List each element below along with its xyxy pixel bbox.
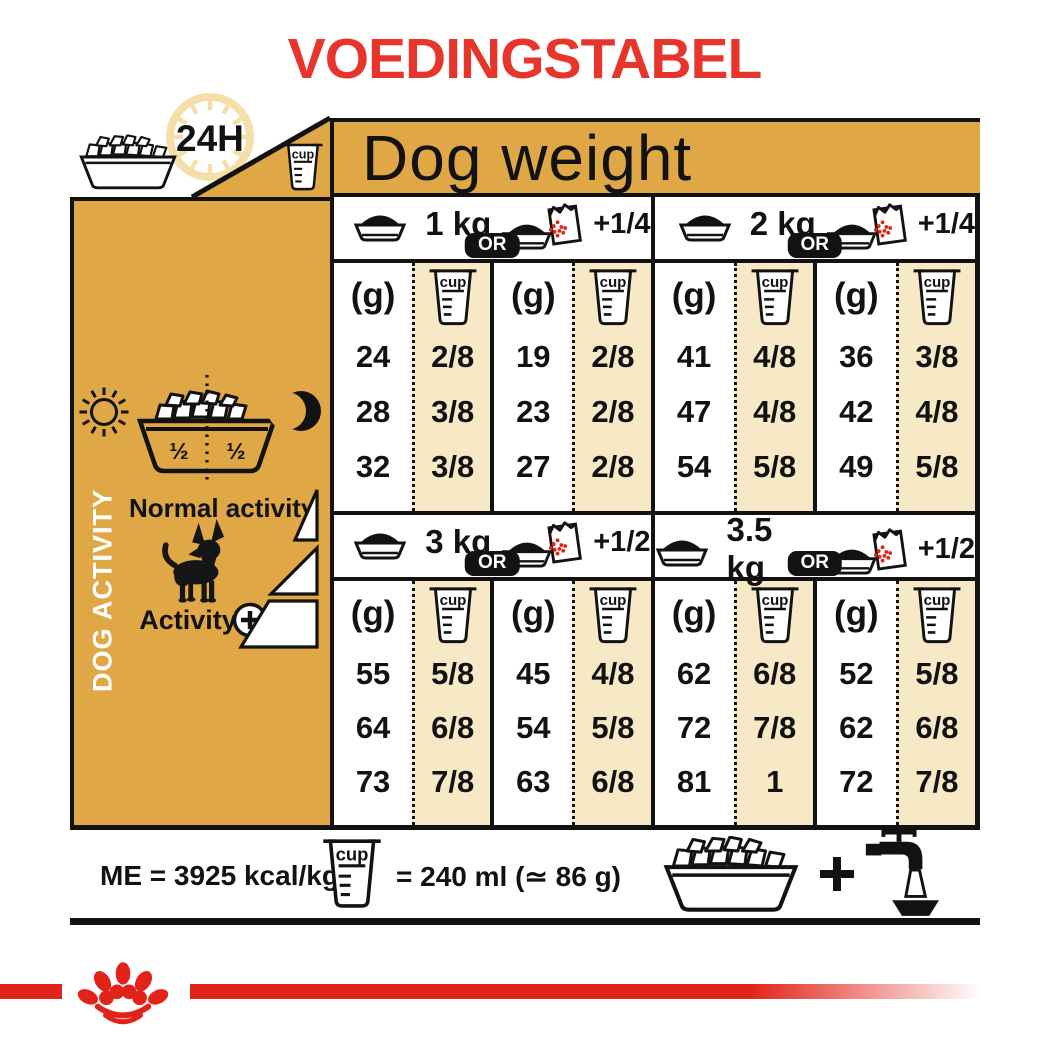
grams-value: 54: [494, 701, 572, 755]
half-left-label: ½: [169, 438, 188, 464]
feeding-table-page: cup: [0, 0, 1049, 1049]
dry-only-subcolumn: (g) 55 64 73 5/8 6/8 7/8: [334, 581, 494, 825]
mixed-feeding-subcolumn: (g) 19 23 27 2/8 2/8 2/8: [494, 263, 650, 511]
kibble-bowl-icon: [655, 836, 807, 912]
cup-value: 6/8: [415, 701, 490, 755]
grams-value: 62: [655, 647, 734, 701]
cup-value: 5/8: [415, 647, 490, 701]
weight-section-2kg: 2 kg +1/4 OR (g) 41 47 54: [655, 197, 976, 515]
brand-band-right: [190, 984, 990, 999]
dry-bowl-icon: [655, 538, 709, 568]
wet-extra-label: +1/4: [918, 210, 975, 239]
kibble-bowl-icon: [78, 134, 178, 190]
grams-value: 41: [655, 329, 734, 384]
activity-level-triangles: [239, 488, 319, 650]
grams-value: 36: [817, 329, 896, 384]
half-half-bowl-icon: ½ ½: [132, 373, 282, 485]
weight-section-3-5kg: 3.5 kg +1/2 OR (g) 62 72 81: [655, 515, 976, 825]
grams-value: 72: [817, 755, 896, 809]
grams-header: (g): [334, 263, 412, 329]
sun-icon: [76, 384, 132, 440]
mixed-feeding-subcolumn: (g) 36 42 49 3/8 4/8 5/8: [817, 263, 975, 511]
dog-weight-label: Dog weight: [362, 121, 692, 195]
dry-bowl-icon: [678, 213, 732, 243]
grams-value: 24: [334, 329, 412, 384]
grams-value: 55: [334, 647, 412, 701]
grams-value: 54: [655, 440, 734, 495]
grams-value: 63: [494, 755, 572, 809]
or-badge: OR: [465, 233, 520, 258]
grams-value: 52: [817, 647, 896, 701]
grams-value: 32: [334, 440, 412, 495]
dry-bowl-icon: [353, 531, 407, 561]
weight-section-3kg: 3 kg +1/2 OR (g) 55 64 73: [334, 515, 655, 825]
grams-value: 62: [817, 701, 896, 755]
dry-bowl-icon: [353, 213, 407, 243]
cup-icon: [587, 265, 639, 327]
grams-value: 73: [334, 755, 412, 809]
activity-triangle-large: [241, 601, 317, 647]
hours-24h-label: 24H: [176, 118, 244, 160]
cup-value: 5/8: [899, 647, 975, 701]
cup-value: 5/8: [899, 440, 975, 495]
section-header: 3 kg +1/2 OR: [334, 515, 651, 581]
grams-value: 81: [655, 755, 734, 809]
cup-value: 7/8: [899, 755, 975, 809]
cup-icon: [427, 583, 479, 645]
metabolizable-energy-label: ME = 3925 kcal/kg: [100, 860, 339, 892]
or-badge: OR: [465, 551, 520, 576]
dry-only-subcolumn: (g) 62 72 81 6/8 7/8 1: [655, 581, 817, 825]
cup-icon: [320, 834, 384, 910]
or-badge: OR: [788, 233, 843, 258]
dog-silhouette-icon: [147, 519, 241, 605]
royal-canin-crown-logo: [64, 952, 182, 1030]
grams-value: 64: [334, 701, 412, 755]
cup-value: 6/8: [575, 755, 650, 809]
cup-icon: [749, 583, 801, 645]
cup-value: 5/8: [575, 701, 650, 755]
cup-value: 2/8: [575, 384, 650, 439]
cup-value: 2/8: [575, 440, 650, 495]
grams-value: 23: [494, 384, 572, 439]
dog-activity-vertical-label: DOG ACTIVITY: [86, 481, 120, 699]
weight-sections-grid: 1 kg +1/4 OR (g) 24 28 32: [330, 197, 980, 830]
grams-header: (g): [817, 581, 896, 647]
dog-activity-sidebar: ½ ½ DOG ACTIVITY Normal activity: [70, 197, 330, 830]
grams-value: 45: [494, 647, 572, 701]
dry-only-subcolumn: (g) 24 28 32 2/8 3/8 3/8: [334, 263, 494, 511]
cup-value: 3/8: [415, 440, 490, 495]
mixed-feeding-subcolumn: (g) 45 54 63 4/8 5/8 6/8: [494, 581, 650, 825]
grams-value: 47: [655, 384, 734, 439]
cup-icon: [427, 265, 479, 327]
cup-value: 4/8: [737, 384, 813, 439]
half-right-label: ½: [226, 438, 245, 464]
section-header: 1 kg +1/4 OR: [334, 197, 651, 263]
grams-header: (g): [494, 581, 572, 647]
grams-header: (g): [655, 263, 734, 329]
grams-value: 72: [655, 701, 734, 755]
moon-icon: [280, 389, 322, 433]
cup-value: 4/8: [737, 329, 813, 384]
water-tap-icon: [860, 824, 938, 922]
grams-header: (g): [655, 581, 734, 647]
wet-extra-label: +1/2: [593, 528, 650, 557]
cup-icon: [911, 583, 963, 645]
section-header: 3.5 kg +1/2 OR: [655, 515, 976, 581]
cup-value: 3/8: [899, 329, 975, 384]
weight-section-1kg: 1 kg +1/4 OR (g) 24 28 32: [334, 197, 655, 515]
section-header: 2 kg +1/4 OR: [655, 197, 976, 263]
cup-value: 4/8: [899, 384, 975, 439]
plus-icon: [820, 857, 854, 891]
or-badge: OR: [788, 551, 843, 576]
cup-value: 2/8: [415, 329, 490, 384]
grams-value: 42: [817, 384, 896, 439]
cup-value: 3/8: [415, 384, 490, 439]
cup-value: 5/8: [737, 440, 813, 495]
cup-value: 1: [737, 755, 813, 809]
dog-weight-header: Dog weight: [330, 118, 980, 197]
grams-header: (g): [334, 581, 412, 647]
page-title: VOEDINGSTABEL: [0, 26, 1049, 92]
cup-icon: [911, 265, 963, 327]
brand-band-left: [0, 984, 62, 999]
grams-value: 27: [494, 440, 572, 495]
cup-value: 4/8: [575, 647, 650, 701]
footer-info-bar: ME = 3925 kcal/kg = 240 ml (≃ 86 g): [70, 830, 980, 925]
activity-triangle-small: [295, 490, 317, 540]
cup-value: 7/8: [737, 701, 813, 755]
cup-value: 7/8: [415, 755, 490, 809]
activity-triangle-medium: [271, 548, 317, 594]
wet-extra-label: +1/4: [593, 210, 650, 239]
cup-value: 6/8: [737, 647, 813, 701]
mixed-feeding-subcolumn: (g) 52 62 72 5/8 6/8 7/8: [817, 581, 975, 825]
cup-icon: [587, 583, 639, 645]
cup-equivalence-label: = 240 ml (≃ 86 g): [396, 860, 621, 893]
grams-value: 19: [494, 329, 572, 384]
grams-value: 49: [817, 440, 896, 495]
cup-icon: [749, 265, 801, 327]
grams-value: 28: [334, 384, 412, 439]
dry-only-subcolumn: (g) 41 47 54 4/8 4/8 5/8: [655, 263, 817, 511]
cup-value: 2/8: [575, 329, 650, 384]
grams-header: (g): [817, 263, 896, 329]
cup-value: 6/8: [899, 701, 975, 755]
grams-header: (g): [494, 263, 572, 329]
feeding-table: 24H Dog weight: [70, 118, 980, 830]
wet-extra-label: +1/2: [918, 535, 975, 564]
